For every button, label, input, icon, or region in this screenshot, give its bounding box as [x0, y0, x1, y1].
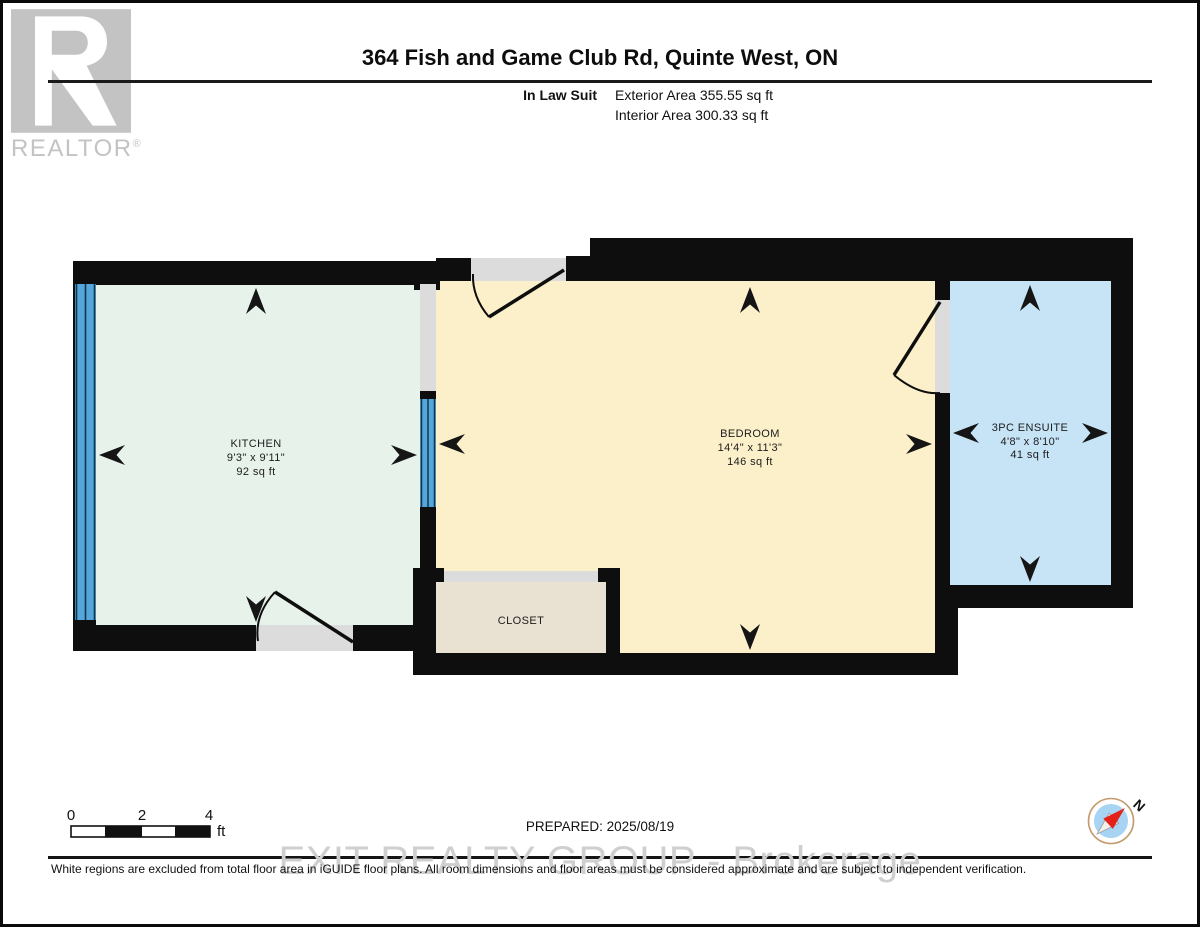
kitchen-window [75, 284, 96, 620]
kitchen-door-opening [256, 625, 353, 651]
floorplan-page: REALTOR® 364 Fish and Game Club Rd, Quin… [0, 0, 1200, 927]
disclaimer-text: White regions are excluded from total fl… [51, 862, 1026, 876]
floor-plan: KITCHEN 9'3" x 9'11" 92 sq ft BEDROOM 14… [3, 3, 1197, 924]
kitchen-dimensions: 9'3" x 9'11" [227, 452, 285, 464]
bedroom-area: 146 sq ft [727, 456, 773, 468]
compass-north-label: N [1130, 796, 1148, 815]
closet-opening [444, 571, 598, 582]
bedroom-name: BEDROOM [720, 428, 780, 440]
ensuite-dimensions: 4'8" x 8'10" [1000, 436, 1059, 448]
ensuite-name: 3PC ENSUITE [992, 422, 1069, 434]
bedroom-dimensions: 14'4" x 11'3" [718, 442, 783, 454]
prepared-date: PREPARED: 2025/08/19 [3, 819, 1197, 834]
divider-gray-panel [420, 284, 436, 391]
closet-name: CLOSET [498, 615, 544, 627]
kitchen-area: 92 sq ft [236, 466, 275, 478]
divider-window [420, 391, 436, 515]
ensuite-door-opening [935, 300, 950, 393]
kitchen-name: KITCHEN [230, 438, 281, 450]
ensuite-area: 41 sq ft [1010, 449, 1049, 461]
